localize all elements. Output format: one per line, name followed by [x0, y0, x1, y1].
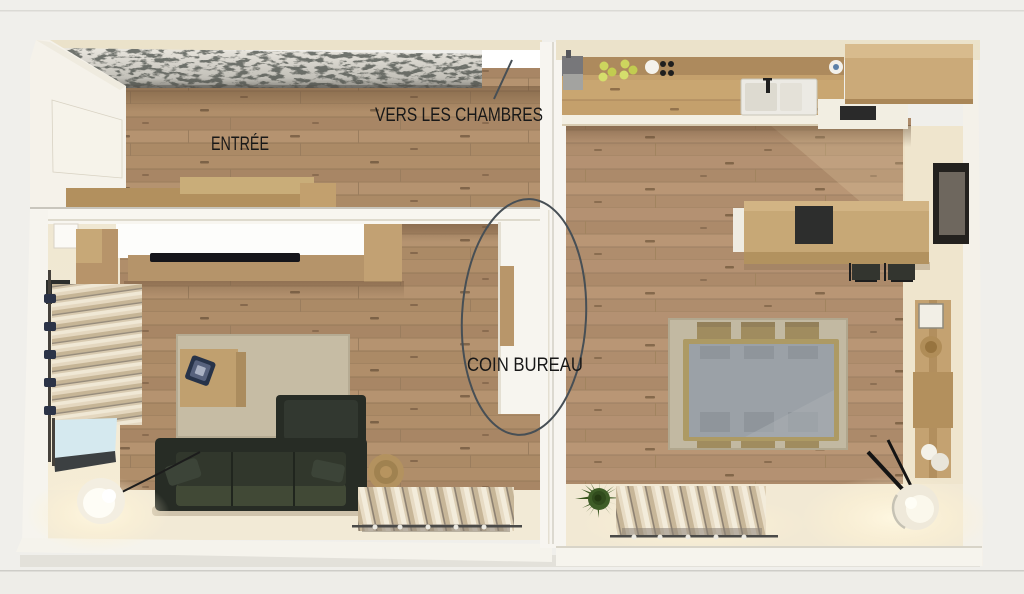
svg-text:COIN BUREAU: COIN BUREAU — [467, 355, 583, 376]
svg-text:VERS LES CHAMBRES: VERS LES CHAMBRES — [375, 105, 543, 126]
svg-text:ENTRÉE: ENTRÉE — [211, 134, 269, 155]
